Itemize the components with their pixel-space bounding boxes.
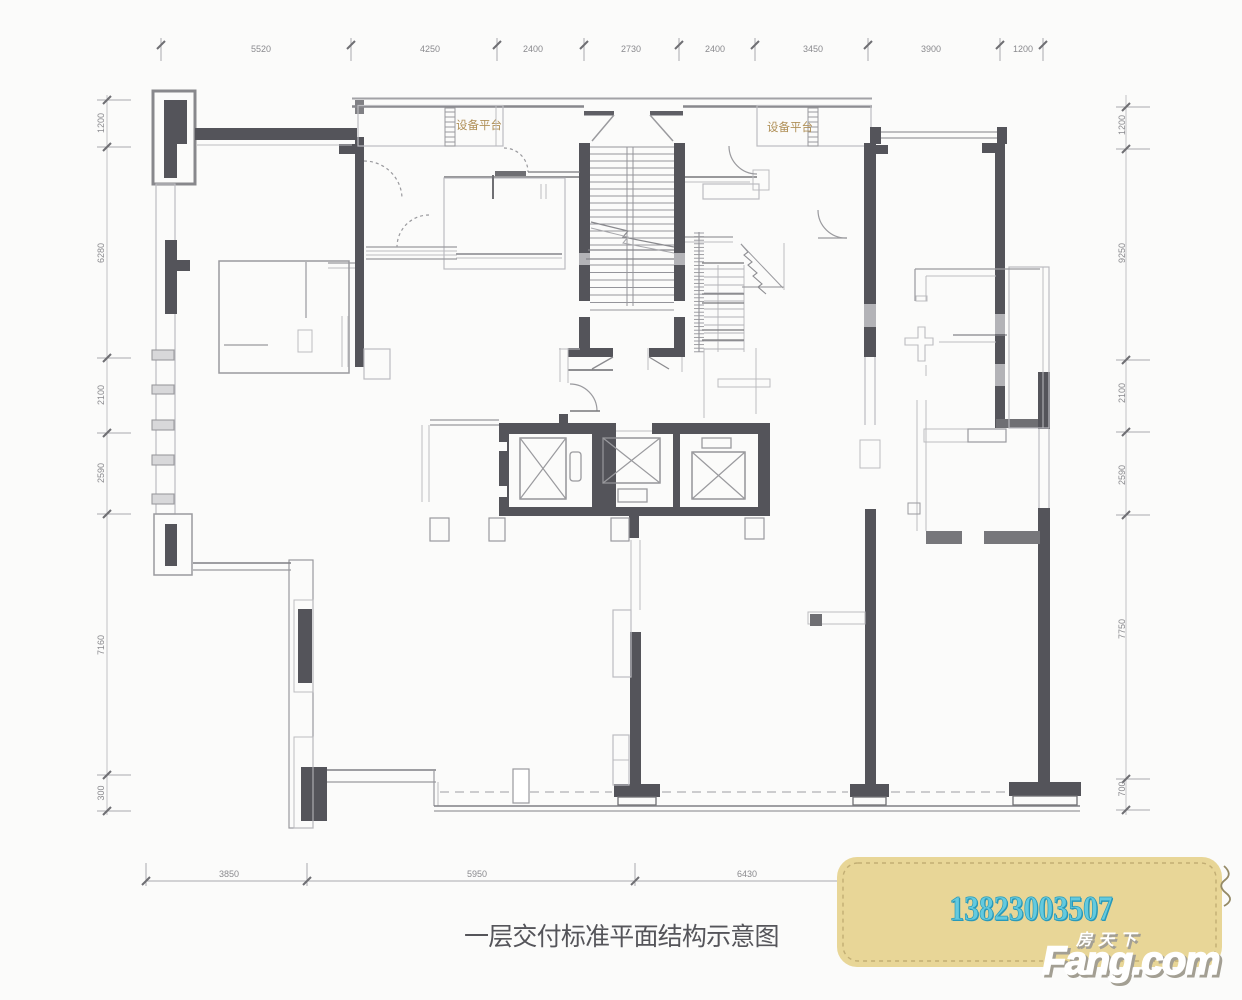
svg-text:9250: 9250 <box>1117 243 1127 263</box>
svg-text:7750: 7750 <box>1117 619 1127 639</box>
svg-text:4250: 4250 <box>420 44 440 54</box>
svg-text:2100: 2100 <box>96 385 106 405</box>
svg-text:3850: 3850 <box>219 869 239 879</box>
svg-text:2730: 2730 <box>621 44 641 54</box>
svg-text:2400: 2400 <box>523 44 543 54</box>
svg-text:5520: 5520 <box>251 44 271 54</box>
svg-text:Fang.com: Fang.com <box>1042 939 1219 983</box>
svg-text:3900: 3900 <box>921 44 941 54</box>
svg-text:3450: 3450 <box>803 44 823 54</box>
svg-text:2590: 2590 <box>1117 465 1127 485</box>
svg-text:1200: 1200 <box>96 113 106 133</box>
svg-text:设备平台: 设备平台 <box>767 120 813 134</box>
svg-text:设备平台: 设备平台 <box>456 118 502 132</box>
svg-text:5950: 5950 <box>467 869 487 879</box>
svg-text:2400: 2400 <box>705 44 725 54</box>
svg-text:300: 300 <box>96 785 106 800</box>
svg-text:2590: 2590 <box>96 463 106 483</box>
svg-text:1200: 1200 <box>1013 44 1033 54</box>
svg-text:7160: 7160 <box>96 635 106 655</box>
svg-text:6430: 6430 <box>737 869 757 879</box>
svg-text:13823003507: 13823003507 <box>949 890 1113 929</box>
svg-text:6280: 6280 <box>96 243 106 263</box>
svg-text:一层交付标准平面结构示意图: 一层交付标准平面结构示意图 <box>464 923 780 951</box>
svg-text:2100: 2100 <box>1117 383 1127 403</box>
svg-text:700: 700 <box>1117 781 1127 796</box>
svg-text:1200: 1200 <box>1117 115 1127 135</box>
